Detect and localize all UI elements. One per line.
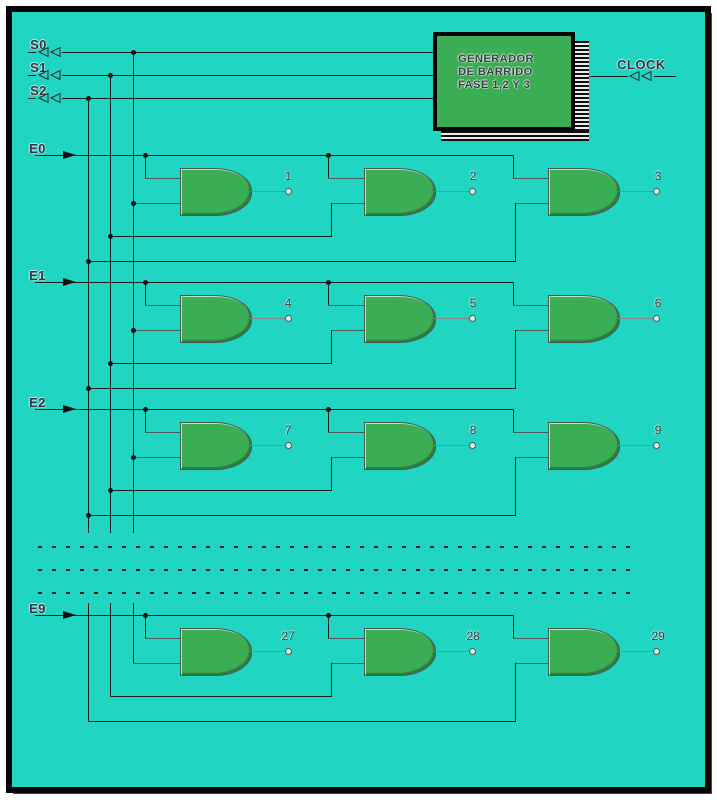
junction-dot — [143, 407, 148, 412]
gate-output-circle — [653, 188, 660, 195]
gate-number: 2 — [458, 169, 488, 183]
gate-output-lead — [250, 651, 285, 652]
route-s1 — [110, 236, 332, 237]
junction-dot — [326, 280, 331, 285]
gate-output-lead — [434, 191, 469, 192]
wire-s2-start — [28, 98, 36, 99]
wire-drop — [145, 615, 146, 638]
gate-output-circle — [285, 315, 292, 322]
gate-input-stub — [331, 663, 365, 664]
gate-input-stub — [145, 432, 181, 433]
gate-output-circle — [653, 442, 660, 449]
row-e2: E2 7 8 9 — [0, 395, 717, 522]
and-gate — [180, 422, 252, 470]
wire-rise — [331, 203, 332, 236]
generator-text-line1: GENERADOR — [458, 53, 534, 65]
wire-drop — [513, 409, 514, 432]
junction-dot — [143, 280, 148, 285]
gate-output-lead — [434, 651, 469, 652]
gate-output-lead — [250, 318, 285, 319]
gate-input-stub — [513, 432, 549, 433]
wire-drop — [513, 155, 514, 178]
gate-input-stub — [133, 203, 181, 204]
gate-input-stub — [328, 305, 365, 306]
and-gate — [364, 628, 436, 676]
wire-rise — [515, 663, 516, 721]
and-gate — [548, 295, 620, 343]
gate-input-stub — [515, 330, 549, 331]
double-buffer-icon — [37, 92, 63, 104]
row-label: E9 — [29, 601, 46, 616]
wire-rise — [515, 330, 516, 388]
junction-dot — [326, 613, 331, 618]
and-gate — [180, 295, 252, 343]
arrow-right-icon — [63, 611, 76, 619]
gate-number: 29 — [643, 629, 673, 643]
wire-clock-left — [589, 76, 628, 77]
gate-output-lead — [434, 445, 469, 446]
row-label: E2 — [29, 395, 46, 410]
junction-dot — [143, 153, 148, 158]
gate-number: 4 — [273, 296, 303, 310]
wire-clock-right — [654, 76, 676, 77]
route-s2 — [88, 721, 516, 722]
gate-output-lead — [250, 445, 285, 446]
and-gate — [548, 168, 620, 216]
junction-dot — [86, 259, 91, 264]
gate-number: 6 — [643, 296, 673, 310]
gate-input-stub — [331, 203, 365, 204]
and-gate — [364, 168, 436, 216]
gate-output-circle — [469, 648, 476, 655]
wire-drop — [145, 409, 146, 432]
gate-number: 9 — [643, 423, 673, 437]
gate-output-circle — [469, 188, 476, 195]
double-buffer-icon — [628, 70, 654, 82]
gate-input-stub — [513, 638, 549, 639]
route-s2 — [88, 388, 516, 389]
junction-dot — [108, 361, 113, 366]
gate-output-circle — [653, 648, 660, 655]
wire-s1-start — [28, 75, 36, 76]
arrow-right-icon — [63, 405, 76, 413]
wire-s2 — [62, 98, 433, 99]
junction-dot — [131, 201, 136, 206]
and-gate — [364, 422, 436, 470]
and-gate — [548, 628, 620, 676]
arrow-right-icon — [63, 278, 76, 286]
row-e1: E1 4 5 6 — [0, 268, 717, 395]
generator-text-line3: FASE 1,2 Y 3 — [458, 79, 530, 91]
generator-text-line2: DE BARRIDO — [458, 66, 533, 78]
gate-output-lead — [618, 318, 653, 319]
junction-dot — [131, 455, 136, 460]
gate-input-stub — [328, 638, 365, 639]
wire-s0-start — [28, 52, 36, 53]
gate-number: 28 — [458, 629, 488, 643]
and-gate — [548, 422, 620, 470]
dashed-continuation-line — [38, 592, 635, 594]
gate-number: 7 — [273, 423, 303, 437]
and-gate — [180, 168, 252, 216]
junction-dot — [86, 513, 91, 518]
wire-drop — [328, 155, 329, 178]
gate-input-stub — [515, 203, 549, 204]
junction-dot — [326, 407, 331, 412]
wire-drop — [328, 615, 329, 638]
wire-rise — [331, 663, 332, 696]
junction-dot — [131, 328, 136, 333]
junction-dot — [86, 386, 91, 391]
row-label: E1 — [29, 268, 46, 283]
route-s2 — [88, 261, 516, 262]
dashed-continuation-line — [38, 546, 635, 548]
gate-number: 1 — [273, 169, 303, 183]
gate-number: 8 — [458, 423, 488, 437]
dashed-continuation-line — [38, 569, 635, 571]
wire-drop — [145, 155, 146, 178]
wire-enable — [35, 409, 513, 410]
double-buffer-icon — [37, 46, 63, 58]
junction-dot — [108, 234, 113, 239]
gate-input-stub — [133, 457, 181, 458]
generator-block: GENERADOR DE BARRIDO FASE 1,2 Y 3 — [433, 32, 575, 131]
gate-input-stub — [328, 178, 365, 179]
gate-input-stub — [331, 457, 365, 458]
wire-drop — [513, 615, 514, 638]
wire-drop — [513, 282, 514, 305]
route-s1 — [110, 490, 332, 491]
double-buffer-icon — [37, 69, 63, 81]
junction-dot — [326, 153, 331, 158]
gate-input-stub — [513, 178, 549, 179]
wire-drop — [328, 282, 329, 305]
gate-output-circle — [285, 188, 292, 195]
and-gate — [364, 295, 436, 343]
wire-rise — [515, 457, 516, 515]
route-s1 — [110, 696, 332, 697]
gate-input-stub — [133, 663, 181, 664]
wire-s0 — [62, 52, 433, 53]
gate-input-stub — [145, 638, 181, 639]
gate-input-stub — [145, 305, 181, 306]
route-s2 — [88, 515, 516, 516]
wire-enable — [35, 615, 513, 616]
arrow-right-icon — [63, 151, 76, 159]
wire-rise — [331, 457, 332, 490]
gate-output-circle — [653, 315, 660, 322]
gate-output-lead — [434, 318, 469, 319]
gate-number: 27 — [273, 629, 303, 643]
junction-dot — [143, 613, 148, 618]
schematic-canvas: S0 S1 S2 GENERADOR DE BARRIDO FASE 1,2 Y… — [0, 0, 717, 800]
gate-output-lead — [250, 191, 285, 192]
gate-output-lead — [618, 191, 653, 192]
gate-input-stub — [331, 330, 365, 331]
gate-output-lead — [618, 651, 653, 652]
gate-number: 3 — [643, 169, 673, 183]
gate-input-stub — [145, 178, 181, 179]
gate-number: 5 — [458, 296, 488, 310]
wire-rise — [515, 203, 516, 261]
generator-shadow-right — [575, 41, 589, 135]
gate-output-circle — [285, 442, 292, 449]
gate-input-stub — [328, 432, 365, 433]
gate-output-circle — [469, 442, 476, 449]
gate-output-circle — [285, 648, 292, 655]
and-gate — [180, 628, 252, 676]
wire-rise — [331, 330, 332, 363]
generator-shadow-bottom — [441, 131, 589, 141]
gate-output-circle — [469, 315, 476, 322]
wire-enable — [35, 155, 513, 156]
gate-input-stub — [513, 305, 549, 306]
wire-drop — [145, 282, 146, 305]
route-s1 — [110, 363, 332, 364]
gate-input-stub — [133, 330, 181, 331]
wire-s1 — [62, 75, 433, 76]
wire-drop — [328, 409, 329, 432]
gate-input-stub — [515, 457, 549, 458]
gate-input-stub — [515, 663, 549, 664]
row-e0: E0 1 2 3 — [0, 141, 717, 268]
wire-enable — [35, 282, 513, 283]
row-e9: E9 27 28 29 — [0, 601, 717, 728]
junction-dot — [108, 488, 113, 493]
gate-output-lead — [618, 445, 653, 446]
row-label: E0 — [29, 141, 46, 156]
